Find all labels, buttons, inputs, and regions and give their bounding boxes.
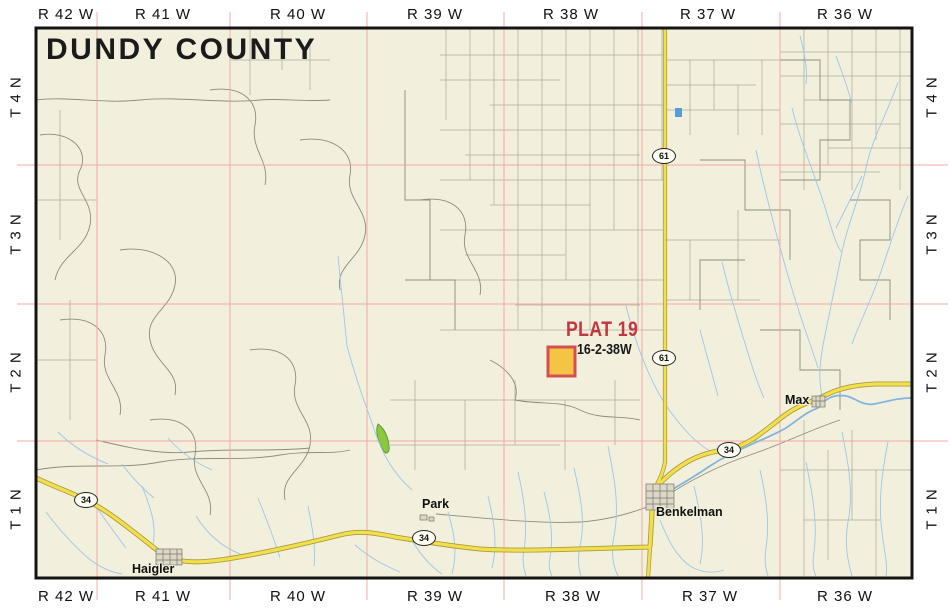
township-label-left-t1n: T 1 N [8, 488, 25, 529]
range-label-top-r39w: R 39 W [407, 6, 463, 23]
county-title: DUNDY COUNTY [46, 33, 317, 67]
range-label-bottom-r37w: R 37 W [682, 588, 738, 605]
range-label-bottom-r36w: R 36 W [817, 588, 873, 605]
range-label-top-r37w: R 37 W [680, 6, 736, 23]
township-label-left-t2n: T 2 N [8, 351, 25, 392]
range-label-bottom-r40w: R 40 W [270, 588, 326, 605]
range-label-top-r38w: R 38 W [543, 6, 599, 23]
highway-61-shield-south: 61 [652, 350, 676, 366]
town-label-park: Park [422, 497, 449, 511]
range-label-top-r41w: R 41 W [135, 6, 191, 23]
plat-name-label[interactable]: PLAT 19 [566, 318, 638, 342]
plat-19-marker[interactable] [548, 347, 575, 376]
map-canvas [0, 0, 950, 613]
range-label-top-r42w: R 42 W [38, 6, 94, 23]
range-label-top-r36w: R 36 W [817, 6, 873, 23]
range-label-bottom-r42w: R 42 W [38, 588, 94, 605]
township-label-right-t3n: T 3 N [924, 213, 941, 254]
township-label-right-t1n: T 1 N [924, 488, 941, 529]
range-label-bottom-r39w: R 39 W [407, 588, 463, 605]
county-area [36, 28, 912, 578]
range-label-bottom-r41w: R 41 W [135, 588, 191, 605]
max-blocks [812, 396, 825, 407]
plat-id-label: 16-2-38W [577, 342, 632, 358]
township-label-left-t3n: T 3 N [8, 213, 25, 254]
highway-34-shield-west: 34 [74, 492, 98, 508]
town-label-max: Max [785, 393, 809, 407]
range-label-bottom-r38w: R 38 W [545, 588, 601, 605]
range-label-top-r40w: R 40 W [270, 6, 326, 23]
pond [675, 108, 682, 117]
township-label-right-t4n: T 4 N [924, 76, 941, 117]
township-label-right-t2n: T 2 N [924, 351, 941, 392]
highway-34-shield-east: 34 [717, 442, 741, 458]
town-label-benkelman: Benkelman [656, 505, 723, 519]
township-label-left-t4n: T 4 N [8, 76, 25, 117]
highway-61-shield-north: 61 [652, 148, 676, 164]
highway-34-shield-park: 34 [412, 530, 436, 546]
plat-map-page: DUNDY COUNTY R 42 W R 41 W R 40 W R 39 W… [0, 0, 950, 613]
town-label-haigler: Haigler [132, 562, 174, 576]
